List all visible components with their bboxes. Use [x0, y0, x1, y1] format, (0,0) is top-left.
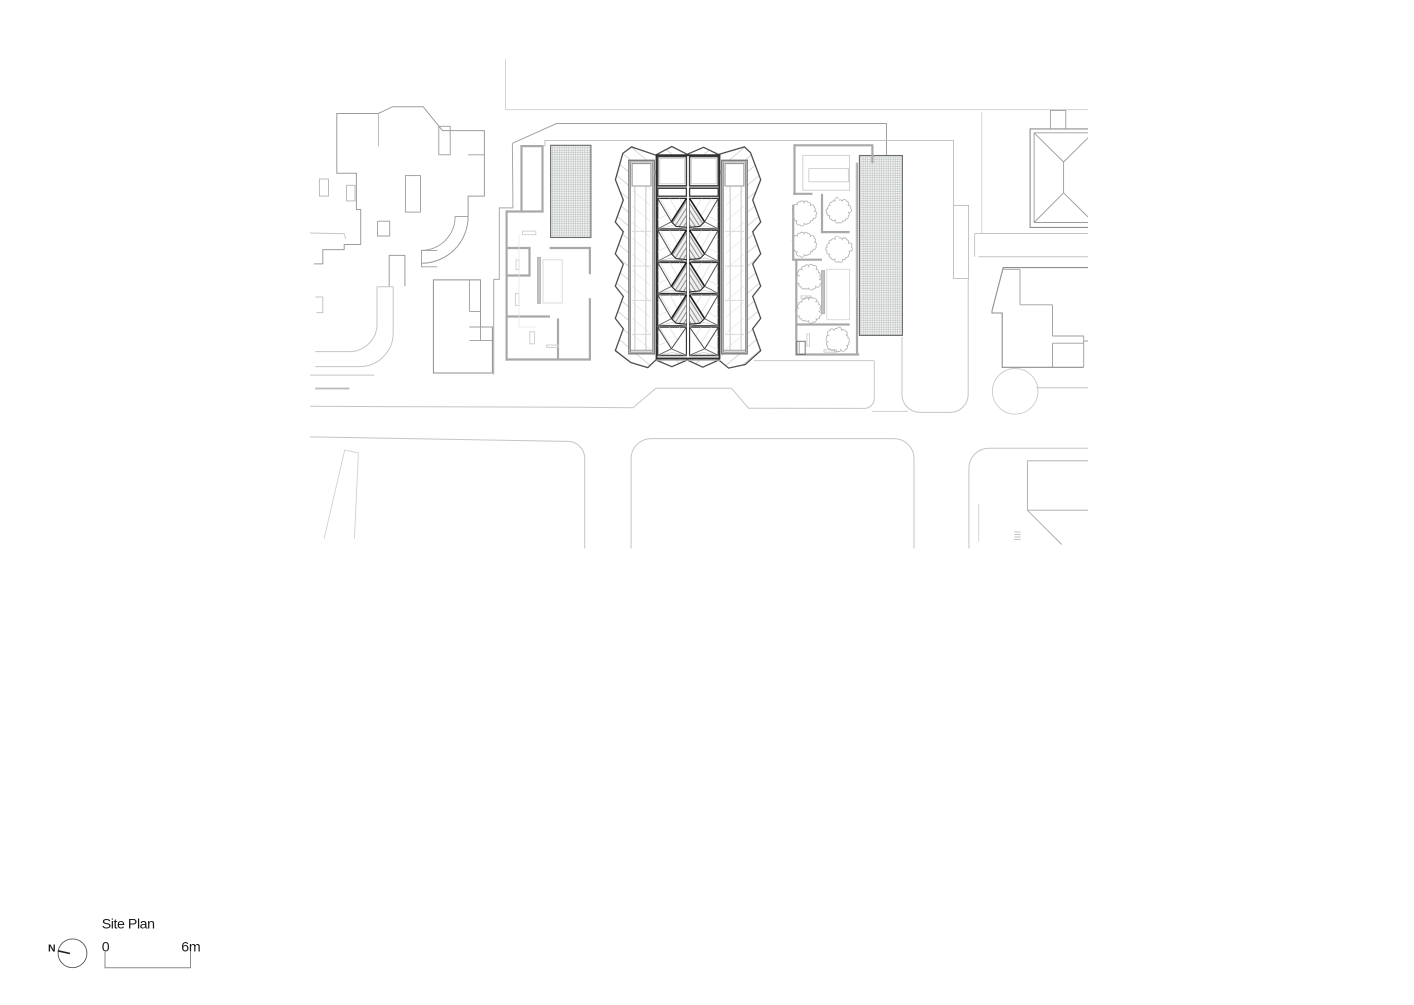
- svg-text:0: 0: [102, 939, 110, 955]
- svg-text:N: N: [48, 943, 56, 955]
- svg-text:Site Plan: Site Plan: [102, 916, 155, 932]
